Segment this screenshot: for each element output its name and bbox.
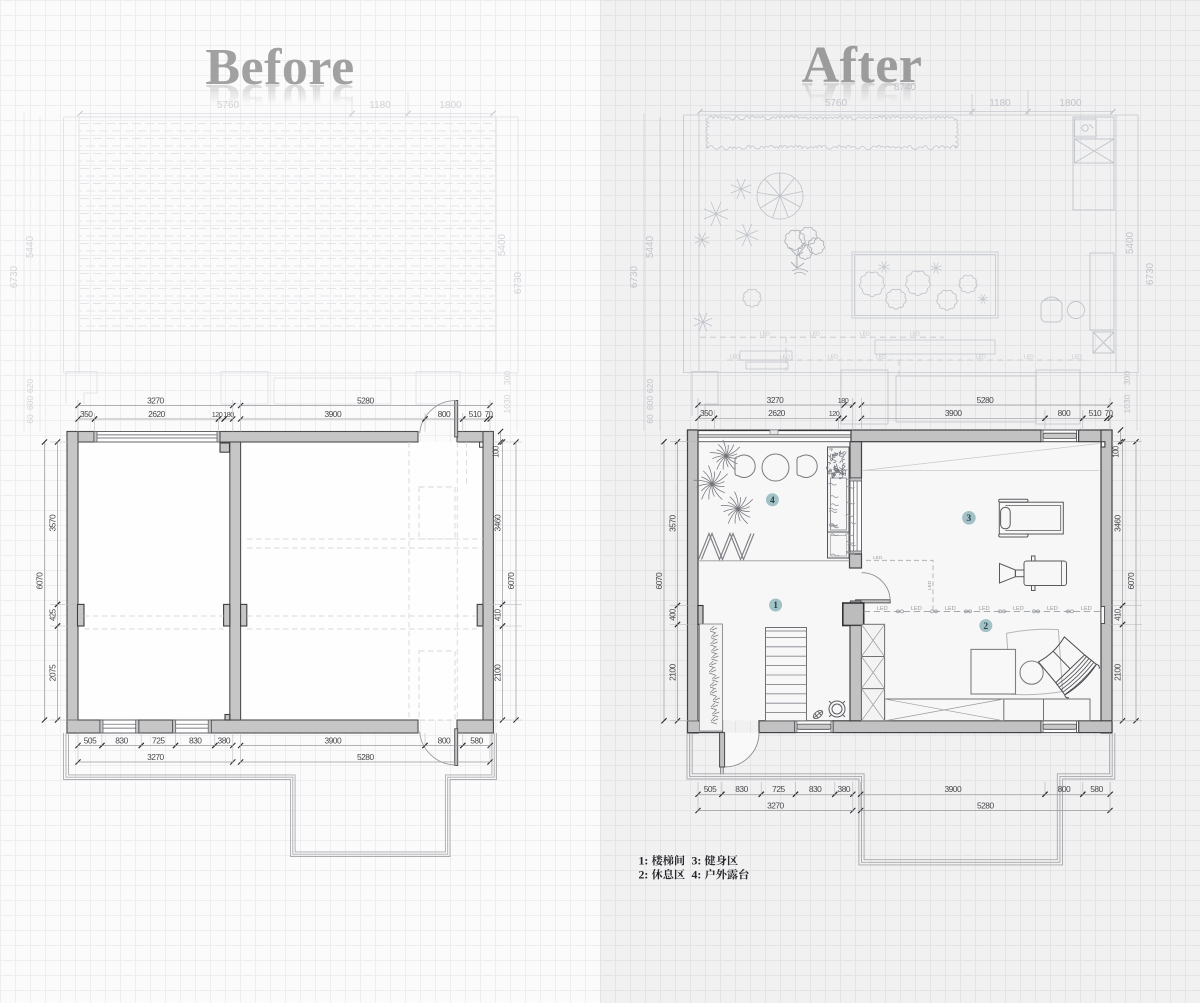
svg-text:2620: 2620 — [768, 408, 785, 418]
svg-text:5400: 5400 — [1125, 231, 1136, 254]
svg-text:580: 580 — [1090, 784, 1103, 794]
svg-text:6730: 6730 — [513, 271, 524, 294]
svg-text:800: 800 — [1058, 784, 1071, 794]
svg-text:505: 505 — [704, 784, 717, 794]
svg-text:410: 410 — [1113, 608, 1122, 621]
svg-text:3460: 3460 — [1112, 514, 1122, 531]
svg-text:2: 2 — [983, 622, 988, 632]
svg-text:620: 620 — [645, 379, 655, 393]
svg-text:5760: 5760 — [825, 98, 848, 109]
svg-text:8740: 8740 — [894, 82, 917, 93]
svg-text:3270: 3270 — [767, 800, 784, 810]
svg-text:505: 505 — [84, 735, 97, 745]
svg-text:600: 600 — [25, 396, 35, 410]
svg-text:2075: 2075 — [47, 664, 57, 681]
svg-text:LED: LED — [828, 355, 838, 361]
svg-text:6070: 6070 — [1126, 572, 1136, 589]
svg-text:6070: 6070 — [34, 572, 44, 589]
svg-text:3900: 3900 — [324, 735, 341, 745]
svg-text:1: 1 — [773, 601, 778, 611]
svg-text:800: 800 — [1058, 408, 1071, 418]
svg-text:380: 380 — [838, 784, 851, 794]
svg-text:5280: 5280 — [357, 752, 374, 762]
svg-text:830: 830 — [115, 735, 128, 745]
svg-text:3:: 3: — [692, 854, 702, 868]
svg-text:180: 180 — [838, 396, 849, 405]
svg-text:580: 580 — [470, 735, 483, 745]
svg-text:LED: LED — [877, 606, 888, 612]
svg-text:3570: 3570 — [667, 514, 677, 531]
svg-text:LED: LED — [760, 332, 770, 338]
svg-text:After: After — [802, 71, 923, 128]
svg-text:350: 350 — [700, 408, 713, 418]
svg-text:100: 100 — [491, 445, 500, 458]
svg-text:LED: LED — [1024, 355, 1034, 361]
svg-text:830: 830 — [809, 784, 822, 794]
svg-text:1030: 1030 — [1122, 394, 1132, 413]
svg-text:120: 120 — [212, 410, 223, 419]
svg-text:3460: 3460 — [492, 514, 502, 531]
svg-text:LED: LED — [1072, 355, 1082, 361]
svg-text:LED: LED — [1047, 606, 1058, 612]
svg-text:LED: LED — [910, 332, 920, 338]
svg-text:380: 380 — [218, 735, 231, 745]
svg-text:100: 100 — [1111, 445, 1120, 458]
svg-text:6730: 6730 — [629, 265, 640, 288]
svg-text:800: 800 — [438, 409, 451, 419]
svg-text:5280: 5280 — [977, 800, 994, 810]
svg-text:725: 725 — [772, 784, 785, 794]
svg-text:1800: 1800 — [1059, 98, 1082, 109]
svg-text:725: 725 — [152, 735, 165, 745]
svg-text:60: 60 — [25, 414, 35, 424]
svg-text:830: 830 — [189, 735, 202, 745]
svg-text:LED: LED — [876, 355, 886, 361]
svg-text:1030: 1030 — [502, 394, 512, 413]
svg-text:5440: 5440 — [25, 235, 36, 258]
svg-text:1:: 1: — [639, 854, 649, 868]
svg-text:3900: 3900 — [324, 409, 341, 419]
svg-text:4: 4 — [770, 496, 775, 506]
svg-text:LED: LED — [927, 580, 933, 590]
svg-text:425: 425 — [48, 608, 57, 621]
svg-text:3270: 3270 — [767, 395, 784, 405]
svg-text:1180: 1180 — [369, 100, 391, 111]
svg-text:LED: LED — [810, 332, 820, 338]
svg-text:2100: 2100 — [492, 664, 502, 681]
svg-text:LED: LED — [1081, 606, 1092, 612]
svg-text:510: 510 — [469, 409, 482, 419]
svg-text:70: 70 — [485, 410, 494, 419]
svg-text:3: 3 — [967, 514, 972, 524]
svg-text:600: 600 — [645, 396, 655, 410]
svg-text:5280: 5280 — [977, 395, 994, 405]
svg-text:510: 510 — [1089, 408, 1102, 418]
svg-text:LED: LED — [1013, 606, 1024, 612]
svg-text:410: 410 — [493, 608, 502, 621]
svg-text:830: 830 — [735, 784, 748, 794]
svg-text:300: 300 — [502, 371, 512, 385]
svg-text:3900: 3900 — [944, 784, 961, 794]
svg-text:LED: LED — [976, 355, 986, 361]
svg-text:300: 300 — [1122, 371, 1132, 385]
svg-text:3900: 3900 — [945, 408, 962, 418]
svg-text:LED: LED — [873, 555, 883, 561]
svg-text:LED: LED — [730, 355, 740, 361]
svg-text:2:: 2: — [639, 868, 649, 882]
svg-text:1800: 1800 — [439, 100, 462, 111]
svg-text:LED: LED — [945, 606, 956, 612]
svg-text:5440: 5440 — [645, 235, 656, 258]
svg-text:6070: 6070 — [654, 572, 664, 589]
svg-text:2100: 2100 — [667, 663, 677, 680]
svg-text:3270: 3270 — [147, 752, 164, 762]
svg-text:60: 60 — [645, 414, 655, 424]
svg-text:3570: 3570 — [47, 514, 57, 531]
svg-text:800: 800 — [438, 735, 451, 745]
svg-text:350: 350 — [80, 409, 93, 419]
svg-text:4:: 4: — [692, 868, 702, 882]
svg-text:6730: 6730 — [9, 265, 20, 288]
svg-text:6070: 6070 — [506, 572, 516, 589]
svg-text:5400: 5400 — [497, 233, 508, 256]
svg-text:5280: 5280 — [357, 395, 374, 405]
svg-text:LED: LED — [979, 606, 990, 612]
svg-text:400: 400 — [668, 608, 677, 621]
svg-text:2100: 2100 — [1112, 663, 1122, 680]
svg-text:5760: 5760 — [217, 100, 240, 111]
svg-text:620: 620 — [25, 379, 35, 393]
svg-text:1180: 1180 — [989, 98, 1011, 109]
svg-text:120: 120 — [829, 409, 840, 418]
svg-text:LED: LED — [911, 606, 922, 612]
svg-text:3270: 3270 — [147, 395, 164, 405]
svg-text:6730: 6730 — [1145, 262, 1156, 285]
svg-text:LED: LED — [860, 332, 870, 338]
svg-text:LED: LED — [780, 355, 790, 361]
svg-text:70: 70 — [1105, 409, 1114, 418]
svg-text:2620: 2620 — [148, 409, 165, 419]
